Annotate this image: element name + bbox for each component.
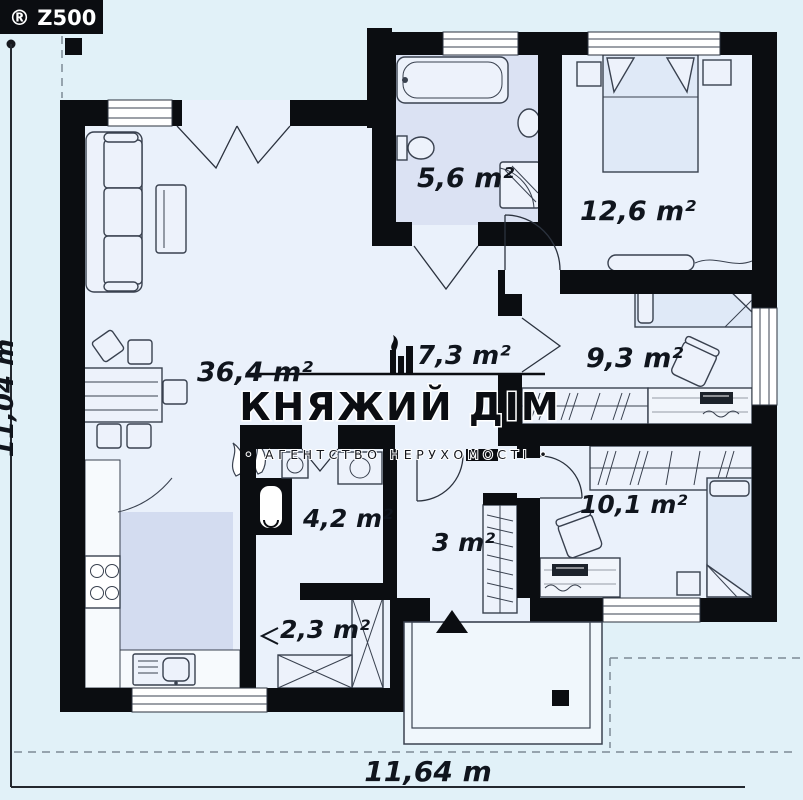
label-bedroom3: 10,1 m² — [580, 490, 687, 519]
bathroom-sink — [518, 109, 540, 137]
floor-plan-drawing: КНЯЖИЙ ДІМ • АГЕНТСТВО НЕРУХОМОСТІ • 36,… — [0, 0, 803, 800]
stove — [85, 556, 120, 608]
label-bedroom2: 9,3 m² — [586, 343, 683, 374]
wall-left — [60, 100, 85, 712]
coffee-table — [156, 185, 186, 253]
pillow — [638, 290, 653, 323]
label-utility: 4,2 m² — [302, 504, 393, 533]
dining-chair — [97, 424, 121, 448]
pillow — [710, 481, 749, 496]
window-bedroom2 — [752, 308, 777, 405]
nightstand — [703, 60, 731, 85]
wall-bedroom3-west — [517, 498, 540, 598]
window-bedroom3 — [603, 598, 700, 622]
kitchen-floor — [120, 512, 233, 653]
window-bathroom — [443, 32, 518, 55]
keyboard — [552, 564, 588, 576]
bedroom-bench — [608, 255, 694, 271]
brand-logo-text: ® Z500 — [9, 6, 96, 30]
bathtub — [397, 57, 508, 103]
wall-bedroom1-bottom — [560, 270, 752, 294]
dining-table — [80, 368, 162, 422]
dining-chair — [128, 340, 152, 364]
window-bedroom1 — [588, 32, 720, 55]
terrace-column — [65, 38, 82, 55]
window-living — [108, 100, 172, 126]
label-entry: 3 m² — [432, 528, 495, 557]
bath-faucet — [402, 77, 408, 83]
wall-utility-storage — [300, 583, 395, 600]
dining-chair — [127, 424, 151, 448]
toilet — [397, 136, 434, 160]
porch-outline — [404, 622, 602, 744]
dining-chair — [163, 380, 187, 404]
porch-column — [552, 690, 569, 706]
brand-box: ® Z500 — [0, 0, 103, 34]
watermark-subtitle: • АГЕНТСТВО НЕРУХОМОСТІ • — [245, 447, 552, 462]
label-bedroom1: 12,6 m² — [580, 196, 696, 227]
wall-bath-bedroom — [538, 32, 562, 246]
desk — [648, 388, 752, 424]
label-width-dimension: 11,64 m — [364, 755, 492, 788]
sofa — [86, 132, 142, 292]
label-storage: 2,3 m² — [280, 615, 370, 644]
desk — [540, 558, 620, 597]
label-depth-dimension: 11,04 m — [0, 339, 20, 457]
nightstand — [577, 62, 601, 86]
label-bathroom: 5,6 m² — [417, 163, 514, 194]
wall-kitchen-utility — [240, 449, 256, 688]
watermark-title: КНЯЖИЙ ДІМ — [239, 385, 560, 429]
entry-closet — [483, 505, 517, 613]
window-kitchen — [132, 688, 267, 712]
stool — [677, 572, 700, 595]
keyboard — [700, 392, 733, 404]
label-hall: 7,3 m² — [417, 341, 511, 371]
label-living: 36,4 m² — [197, 357, 313, 388]
wall-bath-left — [372, 55, 396, 246]
floor-plan-page: КНЯЖИЙ ДІМ • АГЕНТСТВО НЕРУХОМОСТІ • 36,… — [0, 0, 803, 800]
kitchen-sink — [133, 654, 195, 685]
